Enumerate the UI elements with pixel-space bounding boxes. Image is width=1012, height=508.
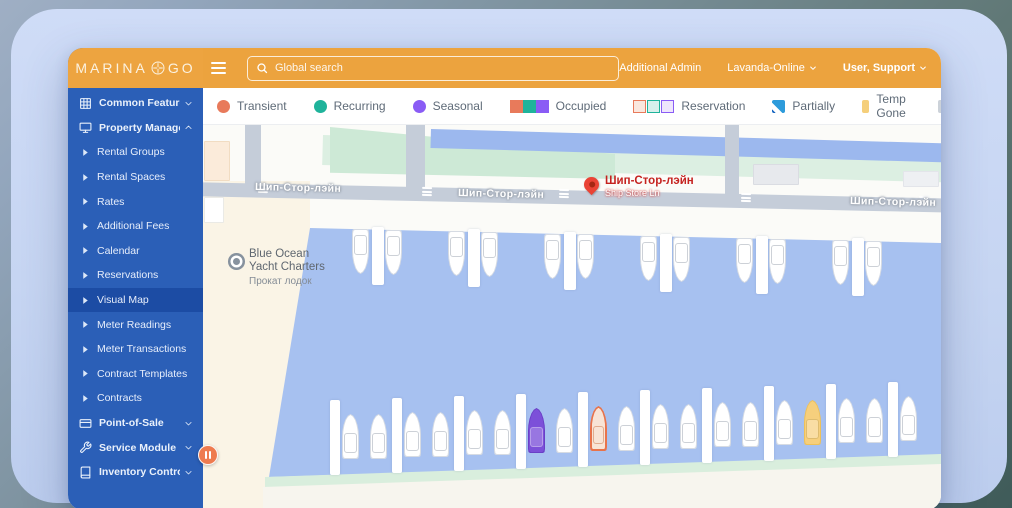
global-search[interactable] — [247, 56, 619, 81]
street-name-label: Шип-Стор-лэйн — [255, 181, 341, 195]
chevron-up-icon — [184, 123, 193, 132]
poi-line3: Прокат лодок — [249, 275, 325, 288]
legend-label: Transient — [237, 99, 287, 113]
brand-text-left: MARINA — [75, 60, 147, 76]
chevron-down-icon — [809, 64, 817, 72]
sidebar-item-label: Contracts — [97, 392, 193, 404]
legend-label: Temp Gone — [876, 92, 911, 120]
sidebar-item-inventory-control[interactable]: Inventory Control — [68, 460, 203, 485]
poi-line1: Blue Ocean — [249, 248, 325, 261]
legend-label: Recurring — [334, 99, 386, 113]
legend-item-reservation: Reservation — [633, 99, 745, 113]
menu-icon[interactable] — [211, 62, 226, 75]
legend-label: Partially — [792, 99, 835, 113]
book-icon — [79, 466, 92, 479]
topbar-link-user-support[interactable]: User, Support — [843, 62, 927, 74]
street-name-label: Шип-Стор-лэйн — [850, 195, 936, 209]
caret-right-icon — [82, 173, 89, 182]
sidebar-item-label: Rates — [97, 196, 193, 208]
app-window: MARINA GO Common FeaturesProperty Manage… — [68, 48, 941, 508]
topbar-links: Additional AdminLavanda-OnlineUser, Supp… — [619, 62, 927, 74]
wrench-icon — [79, 441, 92, 454]
sidebar-item-property-management[interactable]: Property Management — [68, 116, 203, 141]
sidebar-item-contract-templates[interactable]: Contract Templates — [68, 362, 203, 387]
sidebar-item-rental-groups[interactable]: Rental Groups — [68, 140, 203, 165]
sidebar-item-label: Inventory Control — [99, 466, 180, 478]
legend-swatch — [413, 100, 426, 113]
caret-right-icon — [82, 246, 89, 255]
legend-label: Reservation — [681, 99, 745, 113]
legend-swatch — [510, 100, 549, 113]
caret-right-icon — [82, 271, 89, 280]
sidebar-item-label: Rental Spaces — [97, 171, 193, 183]
legend-swatch — [938, 100, 941, 113]
legend-swatch — [217, 100, 230, 113]
sidebar-item-rental-spaces[interactable]: Rental Spaces — [68, 165, 203, 190]
grid-icon — [79, 97, 92, 110]
sidebar-item-label: Common Features — [99, 97, 180, 109]
legend-item-vacant: Vacant — [938, 99, 941, 113]
poi-label: Blue Ocean Yacht Charters Прокат лодок — [249, 248, 325, 288]
topbar-link-label: User, Support — [843, 62, 915, 74]
sidebar-item-reservations[interactable]: Reservations — [68, 263, 203, 288]
topbar: Additional AdminLavanda-OnlineUser, Supp… — [203, 48, 941, 88]
topbar-link-additional-admin[interactable]: Additional Admin — [619, 62, 701, 74]
legend-label: Seasonal — [433, 99, 483, 113]
legend-item-seasonal: Seasonal — [413, 99, 483, 113]
chevron-down-icon — [184, 468, 193, 477]
caret-right-icon — [82, 148, 89, 157]
monitor-icon — [79, 121, 92, 134]
chevron-down-icon — [919, 64, 927, 72]
caret-right-icon — [82, 320, 89, 329]
logo[interactable]: MARINA GO — [68, 48, 203, 88]
sidebar-item-common-features[interactable]: Common Features — [68, 91, 203, 116]
chevron-down-icon — [184, 419, 193, 428]
sidebar-item-label: Additional Fees — [97, 220, 193, 232]
sidebar-item-calendar[interactable]: Calendar — [68, 239, 203, 264]
brand-text-right: GO — [168, 60, 196, 76]
card-icon — [79, 417, 92, 430]
sidebar-item-meter-transactions[interactable]: Meter Transactions — [68, 337, 203, 362]
sidebar-item-label: Contract Templates — [97, 368, 193, 380]
caret-right-icon — [82, 345, 89, 354]
sidebar-item-label: Reservations — [97, 269, 193, 281]
sidebar: MARINA GO Common FeaturesProperty Manage… — [68, 48, 203, 508]
street-name-label: Шип-Стор-лэйн — [458, 187, 544, 201]
legend-item-recurring: Recurring — [314, 99, 386, 113]
sidebar-item-point-of-sale[interactable]: Point-of-Sale — [68, 411, 203, 436]
marker-subtitle: Ship Store Ln — [605, 188, 660, 198]
sidebar-item-label: Meter Readings — [97, 319, 193, 331]
caret-right-icon — [82, 222, 89, 231]
legend-label: Occupied — [556, 99, 607, 113]
sidebar-item-label: Visual Map — [97, 294, 193, 306]
legend-swatch — [633, 100, 674, 113]
search-input[interactable] — [275, 62, 610, 74]
sidebar-item-label: Point-of-Sale — [99, 417, 180, 429]
topbar-link-lavanda-online[interactable]: Lavanda-Online — [727, 62, 817, 74]
sidebar-item-label: Service Module — [99, 442, 180, 454]
caret-right-icon — [82, 394, 89, 403]
compass-icon — [150, 60, 166, 76]
poi-marker[interactable] — [233, 258, 240, 265]
legend-item-partially: Partially — [772, 99, 835, 113]
topbar-link-label: Lavanda-Online — [727, 62, 805, 74]
chevron-down-icon — [184, 443, 193, 452]
marker-title: Шип-Стор-лэйн — [605, 175, 694, 187]
topbar-link-label: Additional Admin — [619, 62, 701, 74]
sidebar-nav: Common FeaturesProperty ManagementRental… — [68, 88, 203, 485]
sidebar-item-rates[interactable]: Rates — [68, 189, 203, 214]
search-icon — [256, 62, 268, 74]
caret-right-icon — [82, 296, 89, 305]
legend-item-transient: Transient — [217, 99, 287, 113]
sidebar-item-label: Meter Transactions — [97, 343, 193, 355]
sidebar-item-label: Rental Groups — [97, 146, 193, 158]
sidebar-item-contracts[interactable]: Contracts — [68, 386, 203, 411]
sidebar-item-meter-readings[interactable]: Meter Readings — [68, 312, 203, 337]
sidebar-item-additional-fees[interactable]: Additional Fees — [68, 214, 203, 239]
legend-swatch — [862, 100, 869, 113]
legend-item-temp-gone: Temp Gone — [862, 92, 911, 120]
status-legend: TransientRecurringSeasonalOccupiedReserv… — [203, 88, 941, 125]
sidebar-item-label: Calendar — [97, 245, 193, 257]
chevron-down-icon — [184, 99, 193, 108]
caret-right-icon — [82, 369, 89, 378]
sidebar-item-label: Property Management — [99, 122, 180, 134]
poi-line2: Yacht Charters — [249, 261, 325, 274]
legend-swatch — [772, 100, 785, 113]
sidebar-item-visual-map[interactable]: Visual Map — [68, 288, 203, 313]
restaurant-poi-icon[interactable] — [198, 445, 218, 465]
legend-swatch — [314, 100, 327, 113]
sidebar-item-service-module[interactable]: Service Module — [68, 435, 203, 460]
street-labels-layer: Шип-Стор-лэйнШип-Стор-лэйнШип-Стор-лэйн — [203, 125, 941, 508]
marina-map[interactable]: Шип-Стор-лэйнШип-Стор-лэйнШип-Стор-лэйн … — [203, 125, 941, 508]
caret-right-icon — [82, 197, 89, 206]
legend-item-occupied: Occupied — [510, 99, 607, 113]
